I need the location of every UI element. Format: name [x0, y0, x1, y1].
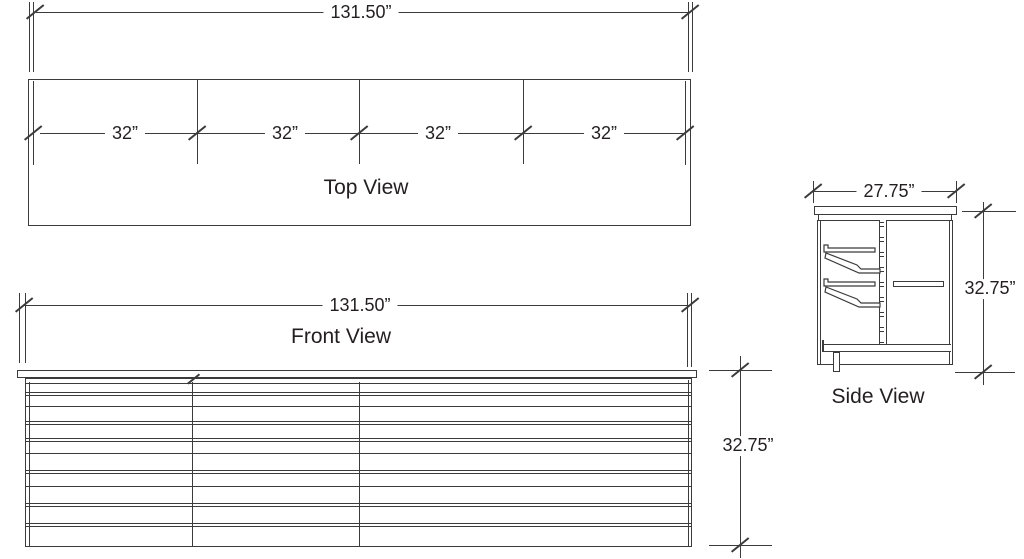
- side-view-title: Side View: [831, 385, 924, 409]
- side-height-dimension-label: 32.75”: [957, 279, 1022, 299]
- front-width-extension-line-left-outer: [19, 293, 20, 363]
- front-height-dimension-label: 32.75”: [715, 436, 780, 456]
- front-counter-top: [17, 370, 697, 378]
- top-width-dimension-label: 131.50”: [323, 3, 398, 23]
- top-section-witness-line-right: [685, 81, 686, 165]
- side-height-tick-line-bottom: [955, 372, 1015, 373]
- top-section-divider-1: [197, 79, 198, 164]
- side-right-wall-outer: [952, 220, 953, 365]
- side-bottom-shelf-lip: [822, 340, 824, 351]
- front-right-stile-line: [688, 380, 689, 547]
- top-section-witness-line-left: [33, 81, 34, 165]
- top-section-dim-label-1: 32”: [105, 124, 145, 144]
- front-view-title: Front View: [291, 325, 391, 349]
- side-bottom-shelf: [822, 344, 951, 352]
- top-section-dim-label-3: 32”: [418, 124, 458, 144]
- top-section-divider-2: [359, 79, 360, 164]
- side-left-wall-outer: [817, 220, 818, 365]
- top-view-title: Top View: [324, 176, 409, 200]
- front-height-dimension-line: [740, 356, 741, 558]
- side-right-shelf: [893, 281, 944, 287]
- side-height-tick-line-top: [962, 211, 1016, 212]
- front-left-stile-line: [29, 382, 30, 547]
- top-section-dim-label-4: 32”: [584, 124, 624, 144]
- side-depth-extension-line-right: [956, 181, 957, 203]
- front-width-dimension-label: 131.50”: [322, 296, 397, 316]
- top-width-extension-line-left-outer: [29, 2, 30, 72]
- drawing-canvas: 131.50” 32” 32” 32” 32” Top View 131.50”…: [0, 0, 1024, 559]
- top-section-divider-3: [523, 79, 524, 164]
- side-shelf-bracket-2: [821, 276, 883, 310]
- front-panel-divider-2: [359, 382, 360, 547]
- side-depth-extension-line-left: [813, 181, 814, 203]
- front-panel-divider-1: [192, 382, 193, 547]
- side-depth-dimension-label: 27.75”: [856, 182, 921, 202]
- side-shelf-bracket-1: [821, 242, 883, 276]
- top-section-dim-label-2: 32”: [265, 124, 305, 144]
- top-width-extension-line-right-outer: [692, 2, 693, 72]
- side-leg: [833, 352, 840, 372]
